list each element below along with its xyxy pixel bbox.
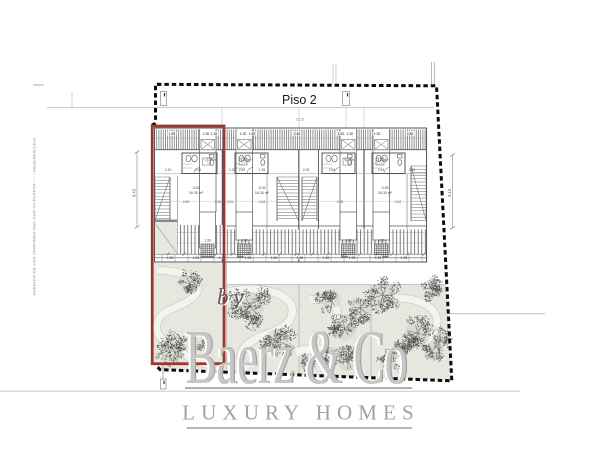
svg-text:1.35: 1.35 [229,168,236,172]
svg-text:3.43: 3.43 [132,188,137,197]
svg-text:3.13: 3.13 [447,188,452,197]
svg-text:1.30: 1.30 [203,132,210,136]
svg-text:1.30: 1.30 [347,132,354,136]
svg-text:1.30: 1.30 [374,132,381,136]
svg-text:5,09 m²: 5,09 m² [207,158,218,162]
svg-text:1.99: 1.99 [169,132,176,136]
svg-text:by: by [217,285,249,310]
svg-text:22.15: 22.15 [296,118,304,122]
svg-text:2.05: 2.05 [303,168,310,172]
svg-text:1,36 m²: 1,36 m² [241,158,252,162]
svg-text:2.84: 2.84 [329,168,336,172]
svg-text:1.90: 1.90 [249,132,256,136]
svg-text:4.80: 4.80 [407,132,414,136]
svg-text:1.30: 1.30 [240,132,247,136]
svg-text:2.60: 2.60 [215,200,222,204]
svg-text:1,36 m²: 1,36 m² [378,158,389,162]
svg-text:3.05: 3.05 [259,186,266,190]
svg-text:3.05: 3.05 [382,186,389,190]
svg-text:2.84: 2.84 [239,168,246,172]
svg-text:4.32: 4.32 [395,200,402,204]
svg-text:Piso 2: Piso 2 [282,93,317,107]
svg-text:1.30: 1.30 [378,239,384,243]
svg-text:CALLE DE ACCESO: CALLE DE ACCESO [33,137,37,172]
svg-text:2.04: 2.04 [227,200,234,204]
svg-text:16.30 m²: 16.30 m² [189,191,204,195]
svg-text:Baerz & Co: Baerz & Co [185,314,407,400]
svg-text:2.48: 2.48 [294,132,301,136]
svg-text:2.19: 2.19 [165,168,172,172]
svg-text:2.05: 2.05 [337,200,344,204]
svg-text:16.30 m²: 16.30 m² [378,191,393,195]
svg-text:1.30: 1.30 [241,239,247,243]
svg-text:2.10: 2.10 [409,168,416,172]
svg-text:1.30: 1.30 [338,132,345,136]
svg-text:2.84: 2.84 [195,168,202,172]
svg-text:4.18: 4.18 [259,200,266,204]
svg-text:3.05: 3.05 [193,186,200,190]
svg-text:2.84: 2.84 [378,168,385,172]
svg-text:LUXURY HOMES: LUXURY HOMES [182,401,420,425]
svg-text:1.30: 1.30 [345,239,351,243]
svg-text:1.30: 1.30 [204,239,210,243]
svg-text:16.30 m²: 16.30 m² [255,191,270,195]
svg-text:1.35: 1.35 [259,168,266,172]
svg-text:2.69: 2.69 [183,200,190,204]
svg-text:AVENIDA DE LOS JARDINES DEL SU: AVENIDA DE LOS JARDINES DEL SUR 24 PLANT… [33,183,37,295]
svg-text:1.30: 1.30 [211,132,218,136]
svg-text:5,09 m²: 5,09 m² [345,158,356,162]
